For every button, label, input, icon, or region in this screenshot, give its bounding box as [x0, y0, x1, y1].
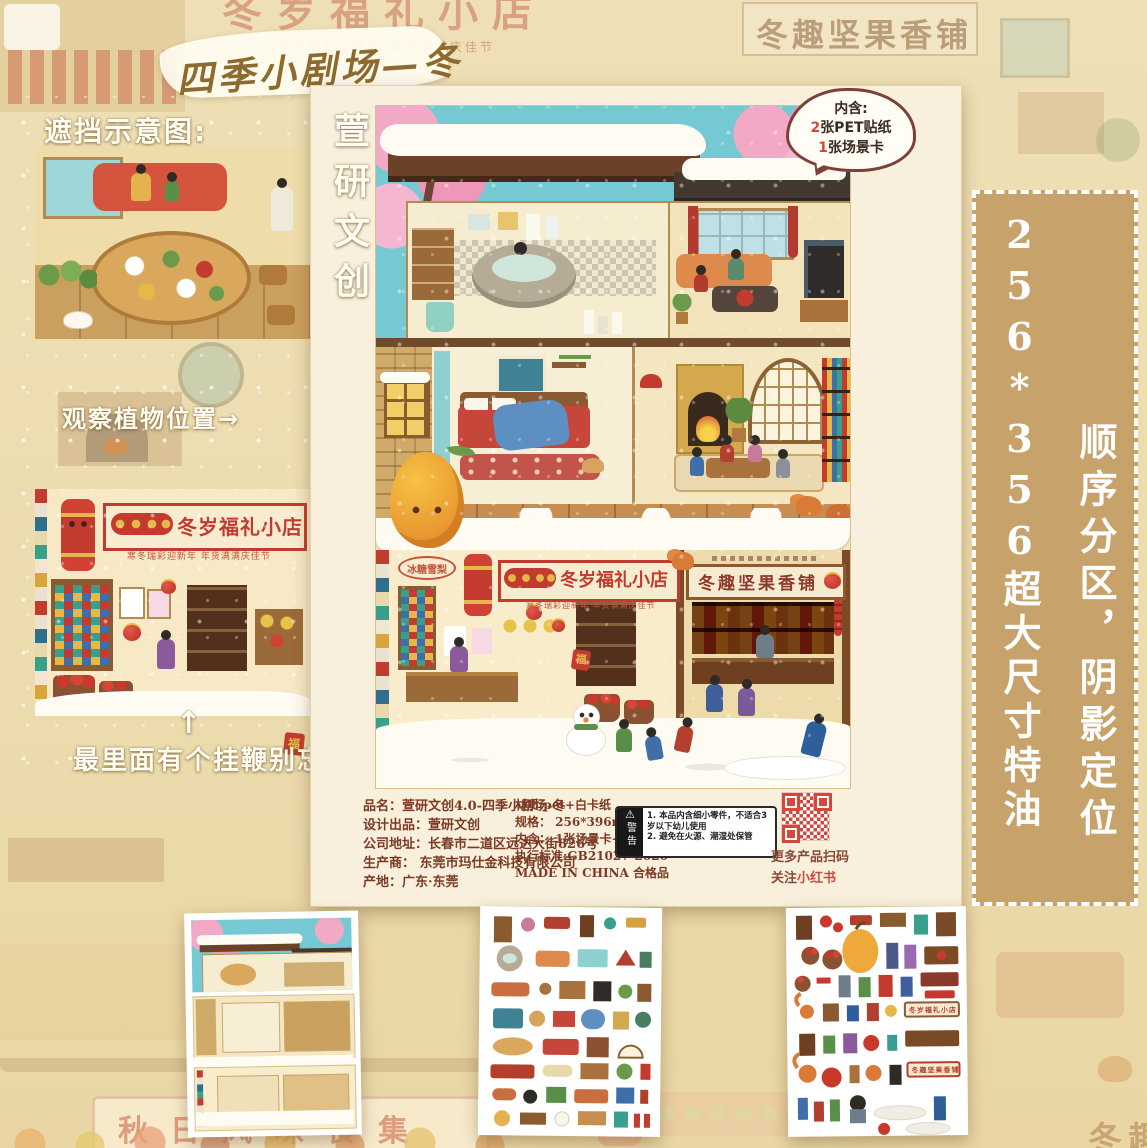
squirrel	[672, 552, 694, 570]
bather-head	[514, 242, 527, 255]
follow-prefix: 关注	[771, 871, 797, 886]
bg-right-shelf	[1018, 92, 1104, 154]
bubble-count: 2	[810, 120, 820, 136]
warning-strip: ⚠ 警告	[617, 808, 643, 856]
bg-festoon-sign	[652, 1092, 802, 1136]
tv-stand	[800, 300, 848, 322]
aquarium-poster	[496, 356, 546, 394]
chili-strings	[834, 598, 842, 636]
top-plant	[672, 294, 692, 324]
poster-illustration: 冰糖雪梨 冬岁福礼小店 寒冬瑞彩迎新年 年货满满庆佳节 福	[375, 105, 851, 789]
customer	[738, 688, 755, 716]
poster: 萱研文创	[310, 85, 962, 907]
bg-bed-scene	[996, 952, 1124, 1018]
promo-image: 冬岁福礼小店 寒冬瑞彩迎新年 年货满满庆佳节 冬趣坚果香铺 秋日风味食集 冬趣坚…	[0, 0, 1147, 1148]
card-snow-ground	[196, 1110, 354, 1127]
bookshelf	[822, 358, 850, 482]
lantern	[824, 574, 841, 589]
pear-face	[410, 504, 444, 520]
card-roof-snow	[196, 933, 302, 945]
customer	[706, 684, 723, 712]
shop-sign-festoon	[111, 513, 173, 535]
tv	[804, 240, 844, 298]
shop-sign-tagline: 寒冬瑞彩迎新年 年货满满庆佳节	[127, 549, 271, 562]
qr-caption: 更多产品扫码	[771, 846, 849, 865]
gift-crates	[401, 590, 433, 666]
dog	[582, 458, 604, 473]
gift-shop-sign-text: 冬岁福礼小店	[560, 566, 668, 592]
blue-blanket	[491, 398, 570, 453]
sticker-sheet-1-graphic	[478, 906, 662, 1137]
nut-sign-tagline-dashes	[712, 556, 816, 561]
occlusion-scene	[35, 147, 310, 339]
bg-fire	[104, 438, 128, 456]
occlusion-label: 遮挡示意图:	[44, 110, 207, 150]
firecracker	[61, 499, 95, 571]
qr-finder	[782, 825, 800, 843]
goods-crates	[55, 585, 109, 665]
doorway	[576, 602, 636, 686]
family-member	[776, 458, 790, 478]
bath-shelf	[412, 228, 454, 300]
scene-plants	[37, 259, 97, 305]
warning-box: ⚠ 警告 1. 本品内含细小零件，不适合3岁以下幼儿使用 2. 避免在火源、潮湿…	[615, 806, 777, 858]
mosaic-strip	[35, 489, 47, 716]
scene-dad	[271, 187, 293, 231]
fu-tag: 福	[571, 649, 592, 671]
poster-brand: 萱研文创	[323, 112, 375, 432]
sticker-sheet-shop: 冬岁福礼小店 冬趣坚果香铺	[786, 906, 968, 1137]
mini-sign-nut: 冬趣坚果香铺	[911, 1065, 959, 1076]
bed-curtain	[434, 351, 450, 469]
bubble-count: 1	[818, 140, 828, 156]
hotpot-table	[712, 286, 778, 312]
qr-follow: 关注小红书	[771, 867, 836, 886]
card-top-band	[191, 918, 352, 993]
bubble-item: 张场景卡	[828, 140, 884, 156]
card-room2	[284, 1001, 351, 1052]
card-room	[222, 1002, 281, 1053]
lantern	[161, 581, 176, 594]
floor-lamp	[640, 374, 662, 388]
bg-left-lower	[0, 944, 185, 1040]
firecracker-face	[67, 519, 89, 533]
bg-nut-sign-bottom: 冬趣坚果香铺	[1088, 1112, 1147, 1148]
goods-table	[255, 609, 303, 665]
left-roof-snow	[380, 124, 706, 156]
bedroom-rug	[460, 454, 600, 480]
hanging-clothes	[526, 214, 560, 240]
top-floor	[376, 338, 850, 347]
warning-text: 1. 本品内含细小零件，不适合3岁以下幼儿使用 2. 避免在火源、潮湿处保管	[647, 811, 773, 843]
brick-window-snow	[380, 372, 430, 383]
fire	[696, 416, 720, 442]
plants-note: 观察植物位置→	[62, 399, 240, 434]
snow-pile	[724, 756, 846, 780]
nut-shop-sign-text: 冬趣坚果香铺	[698, 569, 818, 594]
contents-bubble: 内含: 2张PET贴纸 1张场景卡	[786, 88, 916, 172]
scene-cat	[63, 311, 93, 329]
card-mid-band	[193, 994, 356, 1061]
firecracker	[464, 554, 492, 616]
info-row: MADE IN CHINA 合格品	[515, 865, 669, 882]
family-member	[720, 444, 734, 462]
qr-finder	[814, 793, 832, 811]
bubble-heading: 内含:	[789, 98, 913, 118]
scene-kid	[165, 181, 179, 201]
bubble-line: 1张场景卡	[789, 138, 913, 158]
card-brick	[196, 999, 217, 1055]
warning-triangle-icon: ⚠	[617, 808, 643, 822]
warning-line: 2. 避免在火源、潮湿处保管	[647, 832, 773, 843]
scene-stool1	[259, 265, 287, 285]
scene-mom	[131, 173, 151, 201]
wall-shelf	[552, 362, 586, 368]
bath-bottles	[584, 310, 624, 334]
snow-ground	[35, 691, 310, 716]
bg-squirrel	[1098, 1056, 1132, 1082]
bath-water	[492, 254, 556, 282]
scene-card-thumbnail	[184, 910, 362, 1137]
bubble-line: 2张PET贴纸	[789, 118, 913, 138]
scene-table	[91, 231, 251, 325]
bg-nut-sign-text: 冬趣坚果香铺	[756, 10, 972, 56]
bg-left-counter	[8, 838, 164, 882]
size-claim: 256*356超大尺寸特油	[992, 212, 1047, 892]
bg-shelf-goods	[8, 50, 178, 104]
qr-finder	[782, 793, 800, 811]
shopkeeper	[450, 646, 468, 672]
xiaohongshu-label: 小红书	[797, 871, 836, 886]
mini-sign-gift: 冬岁福礼小店	[909, 1005, 957, 1016]
snowman-scarf	[574, 724, 598, 730]
bg-small-sign	[4, 4, 60, 50]
shopper	[157, 639, 175, 669]
apple-barrel-2	[624, 700, 654, 724]
warning-line: 1. 本品内含细小零件，不适合3岁以下幼儿使用	[647, 811, 773, 832]
sticker-sheet-2-graphic	[786, 906, 968, 1137]
feature-claim: 顺序分区，阴影定位	[1068, 422, 1123, 902]
card-bottom-band	[194, 1065, 357, 1132]
family-member	[728, 258, 744, 280]
family-member	[748, 444, 762, 462]
scene-sofa	[93, 163, 227, 211]
brick-window	[384, 380, 430, 438]
playing-kid	[616, 728, 632, 752]
arrow-up: ↑	[176, 706, 201, 741]
bath-bucket	[426, 302, 454, 332]
warning-label: 警告	[623, 822, 638, 848]
sticker-sheet-furniture	[478, 906, 662, 1137]
lantern	[123, 625, 141, 641]
curtain-right	[788, 206, 798, 258]
wall-pictures	[119, 587, 145, 619]
feature-panel: 256*356超大尺寸特油 顺序分区，阴影定位	[972, 190, 1138, 906]
card-room-floor	[284, 962, 344, 987]
top-window	[696, 208, 794, 260]
gift-shop-tagline: 寒冬瑞彩迎新年 年货满满庆佳节	[526, 600, 656, 611]
shop-scene: 冬岁福礼小店 寒冬瑞彩迎新年 年货满满庆佳节	[35, 489, 310, 716]
family-member	[690, 456, 704, 476]
arched-window	[748, 358, 828, 444]
gift-counter	[406, 672, 518, 702]
bg-right-plant	[1096, 118, 1140, 162]
gift-sign-festoon	[504, 568, 556, 588]
lantern	[552, 620, 565, 632]
top-sofa	[676, 254, 772, 288]
small-sign-text: 冰糖雪梨	[407, 565, 447, 576]
small-sign: 冰糖雪梨	[398, 556, 456, 580]
doorway	[187, 585, 247, 671]
wall-frames	[468, 212, 520, 234]
scene-stool2	[267, 305, 295, 325]
curtain-left	[688, 206, 698, 258]
shop-sign-text: 冬岁福礼小店	[177, 511, 303, 540]
nut-seller	[756, 634, 774, 658]
bubble-item: 张PET贴纸	[820, 120, 891, 136]
family-member	[694, 274, 708, 292]
bg-right-window	[1000, 18, 1070, 78]
